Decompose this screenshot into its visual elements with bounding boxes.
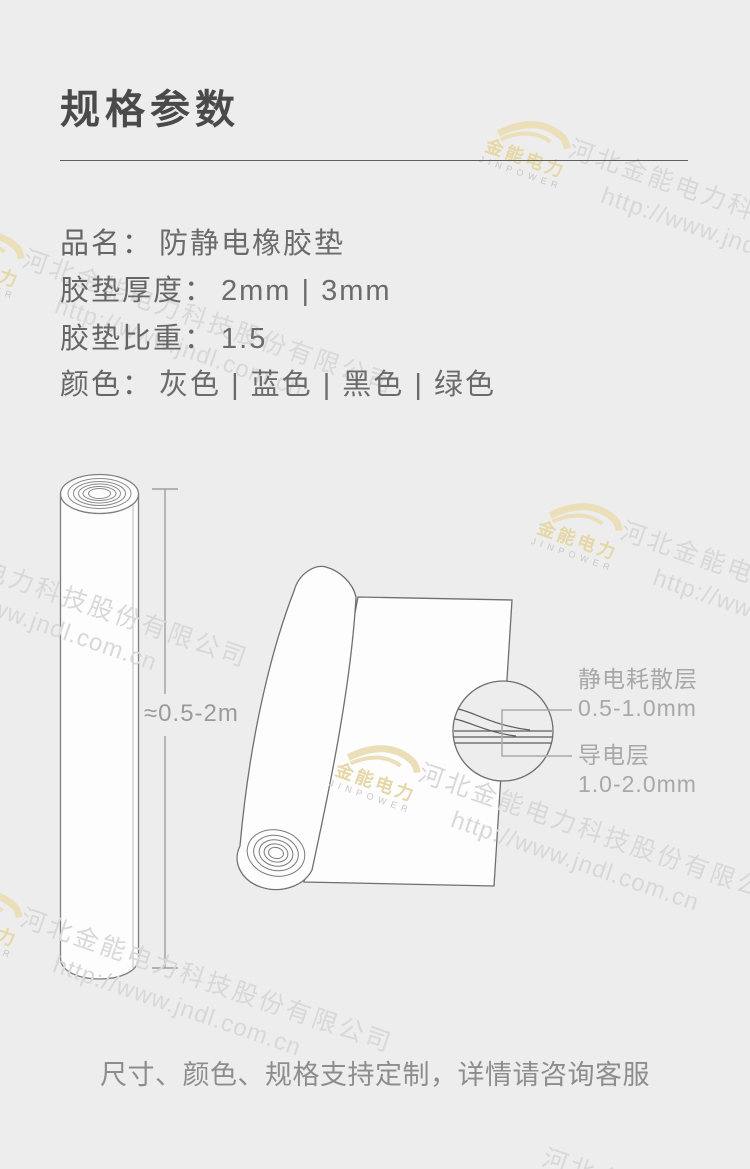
spec-thickness: 胶垫厚度：2mm | 3mm — [60, 273, 392, 311]
customization-note: 尺寸、颜色、规格支持定制，详情请咨询客服 — [0, 1058, 750, 1093]
rolled-mat-side-view — [61, 475, 139, 980]
layer-name: 导电层 — [578, 741, 697, 770]
conductive-layer-label: 导电层 1.0-2.0mm — [578, 741, 697, 799]
spec-label: 胶垫比重： — [60, 323, 215, 355]
spec-value: 2mm | 3mm — [221, 275, 392, 307]
spec-value: 1.5 — [221, 323, 267, 355]
length-dimension-line — [152, 489, 178, 968]
spec-label: 胶垫厚度： — [60, 275, 215, 307]
layer-name: 静电耗散层 — [578, 665, 698, 694]
spec-label: 颜色： — [60, 369, 153, 401]
spec-colors: 颜色：灰色 | 蓝色 | 黑色 | 绿色 — [60, 367, 496, 405]
spec-value: 灰色 | 蓝色 | 黑色 | 绿色 — [159, 369, 496, 401]
page-title: 规格参数 — [60, 90, 240, 130]
layer-thickness: 0.5-1.0mm — [578, 694, 698, 723]
title-underline — [60, 160, 688, 161]
length-dimension-label: ≈0.5-2m — [144, 700, 239, 728]
layer-thickness: 1.0-2.0mm — [578, 770, 697, 799]
spec-gravity: 胶垫比重：1.5 — [60, 321, 267, 359]
layer-zoom-circle — [453, 681, 572, 781]
product-spec-page: 金能电力 JINPOWER 河北金能电力科技股份有限公司 http://www.… — [0, 0, 750, 1169]
dissipative-layer-label: 静电耗散层 0.5-1.0mm — [578, 665, 698, 723]
spec-value: 防静电橡胶垫 — [159, 228, 345, 260]
diagram-canvas — [0, 0, 750, 1169]
spec-label: 品名： — [60, 228, 153, 260]
spec-product-name: 品名：防静电橡胶垫 — [60, 226, 345, 264]
